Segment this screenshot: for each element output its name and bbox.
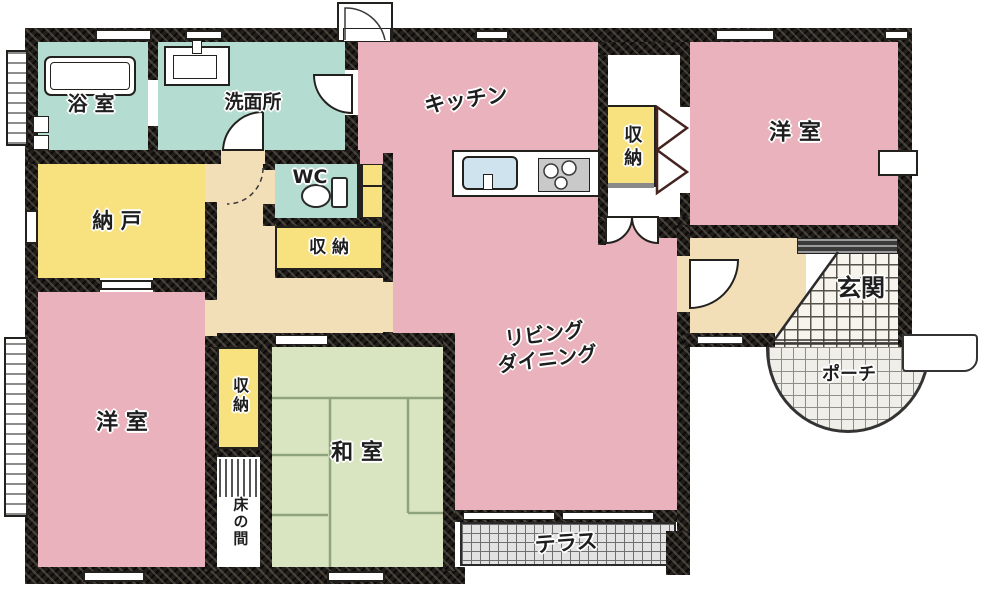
kitchen-faucet <box>483 174 493 190</box>
door-gap <box>205 300 217 336</box>
wall-segment <box>666 531 690 575</box>
hallway-lower <box>217 278 383 333</box>
stove <box>538 158 590 192</box>
sliding-door <box>562 512 654 520</box>
wall-segment <box>28 150 221 164</box>
bay-window <box>6 50 28 146</box>
wall-segment <box>275 270 383 278</box>
window <box>715 29 775 41</box>
wall-segment <box>598 217 606 245</box>
sliding-door <box>275 335 328 345</box>
wall-segment <box>217 449 260 457</box>
door-gap <box>221 150 265 164</box>
wall-segment <box>263 204 275 226</box>
wall-segment <box>345 42 358 70</box>
wall-segment <box>148 42 158 80</box>
room-living-dining-lower <box>455 345 677 512</box>
door-gap <box>383 282 393 332</box>
window <box>884 30 909 40</box>
wall-segment <box>260 347 272 571</box>
window <box>878 150 918 176</box>
bathtub <box>44 56 136 96</box>
entrance-hall <box>690 238 806 333</box>
window <box>83 571 145 582</box>
door-gap <box>677 256 690 316</box>
wall-segment <box>148 126 158 150</box>
window <box>327 571 385 582</box>
wall-segment <box>205 333 455 347</box>
label-washroom: 洗面所 <box>224 91 281 115</box>
hallway-mid <box>263 222 275 278</box>
bay-window <box>4 337 28 517</box>
wc-side-closet <box>362 164 383 218</box>
entrance-step <box>697 336 743 344</box>
wall-segment <box>680 193 690 217</box>
wall-segment <box>680 55 690 107</box>
sliding-door <box>463 512 555 520</box>
closet-kitchen-sill <box>608 183 654 188</box>
label-western-upper: 洋 室 <box>769 119 821 147</box>
label-entrance: 玄関 <box>837 273 885 303</box>
label-bathroom: 浴 室 <box>68 92 115 117</box>
window <box>185 30 223 40</box>
wall-segment <box>275 218 383 226</box>
entrance-door-step <box>902 334 978 372</box>
wall-segment <box>345 115 358 164</box>
window <box>25 210 38 244</box>
door-gap <box>205 164 217 202</box>
label-tokonoma: 床の間 <box>231 497 250 548</box>
washbasin-bowl <box>173 55 217 79</box>
wall-segment <box>153 278 217 292</box>
door-gap <box>148 80 158 126</box>
label-hall-closet: 収 納 <box>309 237 349 258</box>
wall-segment <box>443 333 455 571</box>
wall-segment <box>690 225 898 238</box>
label-kitchen-closet: 収納 <box>620 125 643 171</box>
wall-segment <box>205 336 217 571</box>
wall-top <box>28 28 912 42</box>
wall-segment <box>383 153 393 282</box>
window <box>95 29 152 41</box>
wall-right <box>898 28 912 347</box>
door-gap <box>263 170 275 204</box>
floorplan: 浴 室 洗面所 キッチン 収納 洋 室 WC 収 納 納 戸 リビング ダイニン… <box>0 0 983 599</box>
bath-counter <box>33 135 49 150</box>
wc-side-closet-divider <box>363 185 382 187</box>
bathtub-inner <box>50 62 130 90</box>
tokonoma-hatch <box>219 459 258 497</box>
label-western-lower: 洋 室 <box>96 409 148 437</box>
label-storage-room: 納 戸 <box>92 208 141 234</box>
wall-segment <box>598 42 690 55</box>
shoe-cabinet <box>797 238 898 254</box>
window <box>475 30 509 40</box>
label-porch: ポーチ <box>822 364 876 387</box>
door-gap <box>345 70 358 115</box>
wall-segment <box>677 225 690 260</box>
label-tatami-closet: 収納 <box>229 377 249 415</box>
label-japanese-room: 和 室 <box>331 439 383 467</box>
label-wc: WC <box>293 166 328 190</box>
label-terrace: テラス <box>534 528 598 559</box>
door-opening <box>343 28 391 42</box>
washbasin-faucet <box>192 40 202 54</box>
wall-segment <box>205 150 217 164</box>
window <box>100 280 153 290</box>
wall-segment <box>28 278 100 292</box>
bath-counter <box>33 116 49 133</box>
